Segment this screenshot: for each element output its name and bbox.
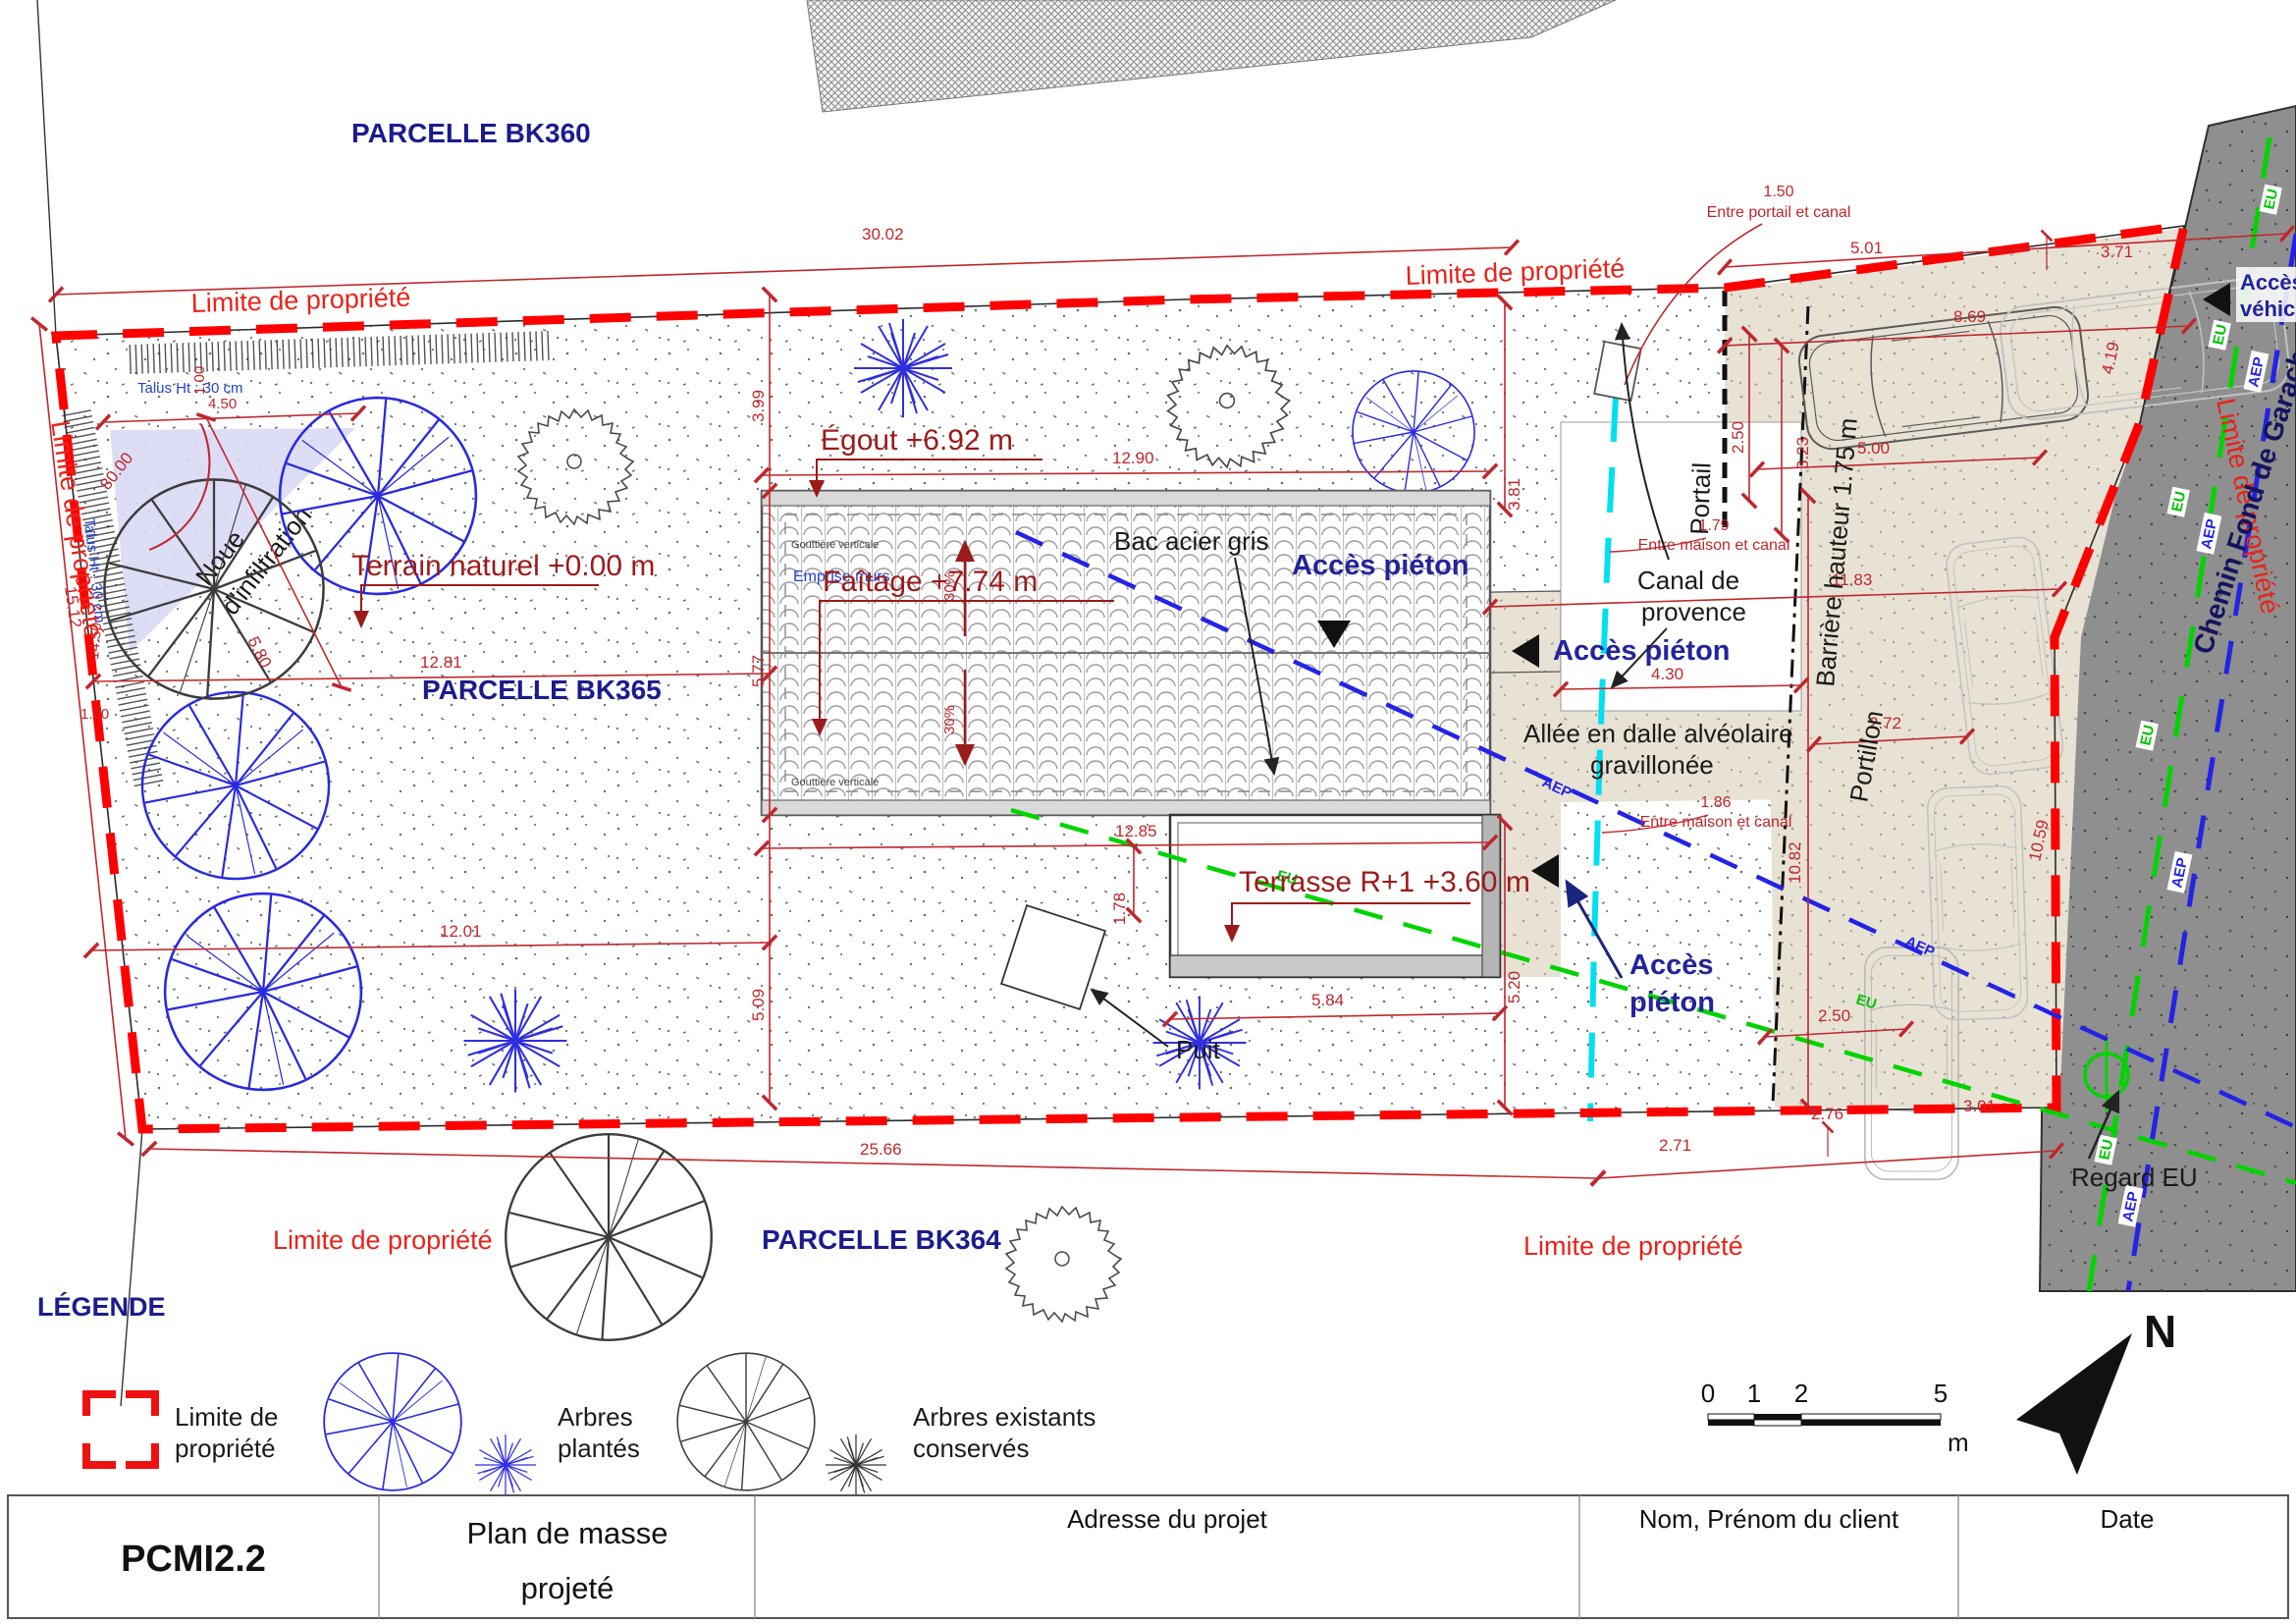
egout-label: Égout +6.92 m <box>821 424 1013 457</box>
acces-pieton-label-top: Accès piéton <box>1292 550 1469 581</box>
dim-2-76: 2.76 <box>1811 1105 1843 1123</box>
dim-25-66: 25.66 <box>860 1140 902 1159</box>
dim-5-09: 5.09 <box>749 989 768 1021</box>
dim-top: 30.02 <box>862 225 904 244</box>
dim-1-78: 1.78 <box>1110 893 1129 925</box>
parcelle-bk365-label: PARCELLE BK365 <box>422 675 662 705</box>
acces-pieton-label-bot2: piéton <box>1629 987 1715 1018</box>
gouttiere-label-bottom: Gouttière verticale <box>791 777 879 788</box>
canal-label1: Canal de <box>1637 566 1739 595</box>
dim-2-71: 2.71 <box>1659 1136 1691 1155</box>
dim-4-50: 4.50 <box>208 396 237 412</box>
dim-5-77: 5.77 <box>749 655 768 687</box>
limite-label-bottom-left: Limite de propriété <box>273 1225 493 1255</box>
north-label: N <box>2144 1306 2176 1357</box>
north-arrow: N <box>2016 1306 2176 1475</box>
gouttiere-label-top: Gouttière verticale <box>791 539 879 551</box>
note-1-50: 1.50 <box>1763 184 1793 200</box>
legend-tree-planted <box>324 1353 461 1490</box>
note-entre-portail: Entre portail et canal <box>1707 204 1851 221</box>
scale-0: 0 <box>1701 1379 1715 1408</box>
dim-4-30: 4.30 <box>1651 665 1683 683</box>
faitage-label: Faîtage +7.74 m <box>823 566 1038 598</box>
title-block-title2: projeté <box>521 1571 614 1605</box>
acces-pieton-label-mid: Accès piéton <box>1553 635 1731 667</box>
note-entre-maison-1: Entre maison et canal <box>1638 537 1790 554</box>
dim-1-00b: 1.00 <box>80 706 109 723</box>
site-plan-page: Noue d'infiltration Gouttière verticale … <box>0 0 2296 1624</box>
dim-12-85: 12.85 <box>1115 822 1157 840</box>
legend-tree-existing <box>677 1353 815 1490</box>
scale-5: 5 <box>1934 1379 1948 1408</box>
legend: LÉGENDE Limite de propriété Arbres plant… <box>37 1291 1095 1495</box>
dim-3-01: 3.01 <box>1963 1097 1996 1115</box>
scale-bar: 0 1 2 5 m <box>1701 1379 1969 1457</box>
title-block-client: Nom, Prénom du client <box>1639 1504 1899 1534</box>
limite-label-top-left: Limite de propriété <box>190 283 410 318</box>
site-plan-drawing: Noue d'infiltration Gouttière verticale … <box>0 0 2296 1624</box>
canal-label2: provence <box>1641 597 1746 626</box>
dim-3-99: 3.99 <box>749 390 768 422</box>
bac-acier-label: Bac acier gris <box>1114 526 1269 556</box>
dim-12-01: 12.01 <box>440 922 482 941</box>
note-1-86: 1.86 <box>1700 794 1731 811</box>
dim-5-00: 5.00 <box>1857 439 1890 458</box>
title-block-code: PCMI2.2 <box>121 1539 266 1580</box>
acces-pieton-label-bot1: Accès <box>1629 949 1713 981</box>
note-entre-maison-2: Entre maison et canal <box>1640 814 1792 831</box>
title-block-date: Date <box>2101 1504 2155 1534</box>
scale-2: 2 <box>1794 1379 1808 1408</box>
allee-label1: Allée en dalle alvéolaire <box>1523 719 1793 748</box>
legend-title: LÉGENDE <box>37 1291 166 1322</box>
dim-5-84: 5.84 <box>1311 991 1344 1009</box>
dim-3-81: 3.81 <box>1505 478 1523 511</box>
acces-vehicules-label2: véhicules <box>2240 297 2296 321</box>
limite-label-top-right: Limite de propriété <box>1405 253 1626 291</box>
dim-2-50: 2.50 <box>1729 421 1747 454</box>
limite-label-bottom-right: Limite de propriété <box>1523 1231 1743 1261</box>
dim-3-23: 3.23 <box>1793 437 1812 469</box>
dim-5-01: 5.01 <box>1850 239 1883 257</box>
terrasse-label: Terrasse R+1 +3.60 m <box>1239 866 1530 898</box>
talus-label-top: Talus Ht : 30 cm <box>137 380 243 397</box>
neighbour-building <box>807 0 1616 112</box>
title-block-adresse: Adresse du projet <box>1067 1504 1268 1534</box>
scale-1: 1 <box>1747 1379 1761 1408</box>
allee-label2: gravillonée <box>1590 750 1714 780</box>
terrain-naturel-label: Terrain naturel +0.00 m <box>351 550 655 582</box>
legend-existants-label1: Arbres existants <box>913 1402 1095 1432</box>
scale-unit: m <box>1948 1428 1969 1457</box>
legend-plantes-label1: Arbres <box>558 1402 633 1432</box>
parcelle-bk364-label: PARCELLE BK364 <box>762 1224 1001 1255</box>
legend-plantes-label2: plantés <box>558 1434 640 1463</box>
dim-8-69: 8.69 <box>1953 307 1986 326</box>
slope-label-bottom: 30% <box>941 705 958 734</box>
dim-12-90: 12.90 <box>1112 449 1154 467</box>
legend-existants-label2: conservés <box>913 1434 1030 1463</box>
dim-3-71: 3.71 <box>2101 243 2133 261</box>
legend-limite-label2: propriété <box>175 1434 276 1463</box>
title-block-title1: Plan de masse <box>466 1516 667 1550</box>
dim-2-50b: 2.50 <box>1818 1006 1850 1025</box>
regard-eu-label: Regard EU <box>2071 1163 2198 1192</box>
dim-12-81: 12.81 <box>420 653 462 672</box>
acces-vehicules-label1: Accès <box>2240 270 2296 295</box>
parcelle-bk360-label: PARCELLE BK360 <box>351 118 591 148</box>
portail-label: Portail <box>1684 462 1717 536</box>
title-block: PCMI2.2 Plan de masse projeté Adresse du… <box>8 1495 2288 1618</box>
dim-10-82: 10.82 <box>1786 841 1804 884</box>
puit-label: Puit <box>1176 1035 1221 1064</box>
legend-limite-label1: Limite de <box>175 1402 279 1432</box>
dim-5-20: 5.20 <box>1505 971 1523 1003</box>
